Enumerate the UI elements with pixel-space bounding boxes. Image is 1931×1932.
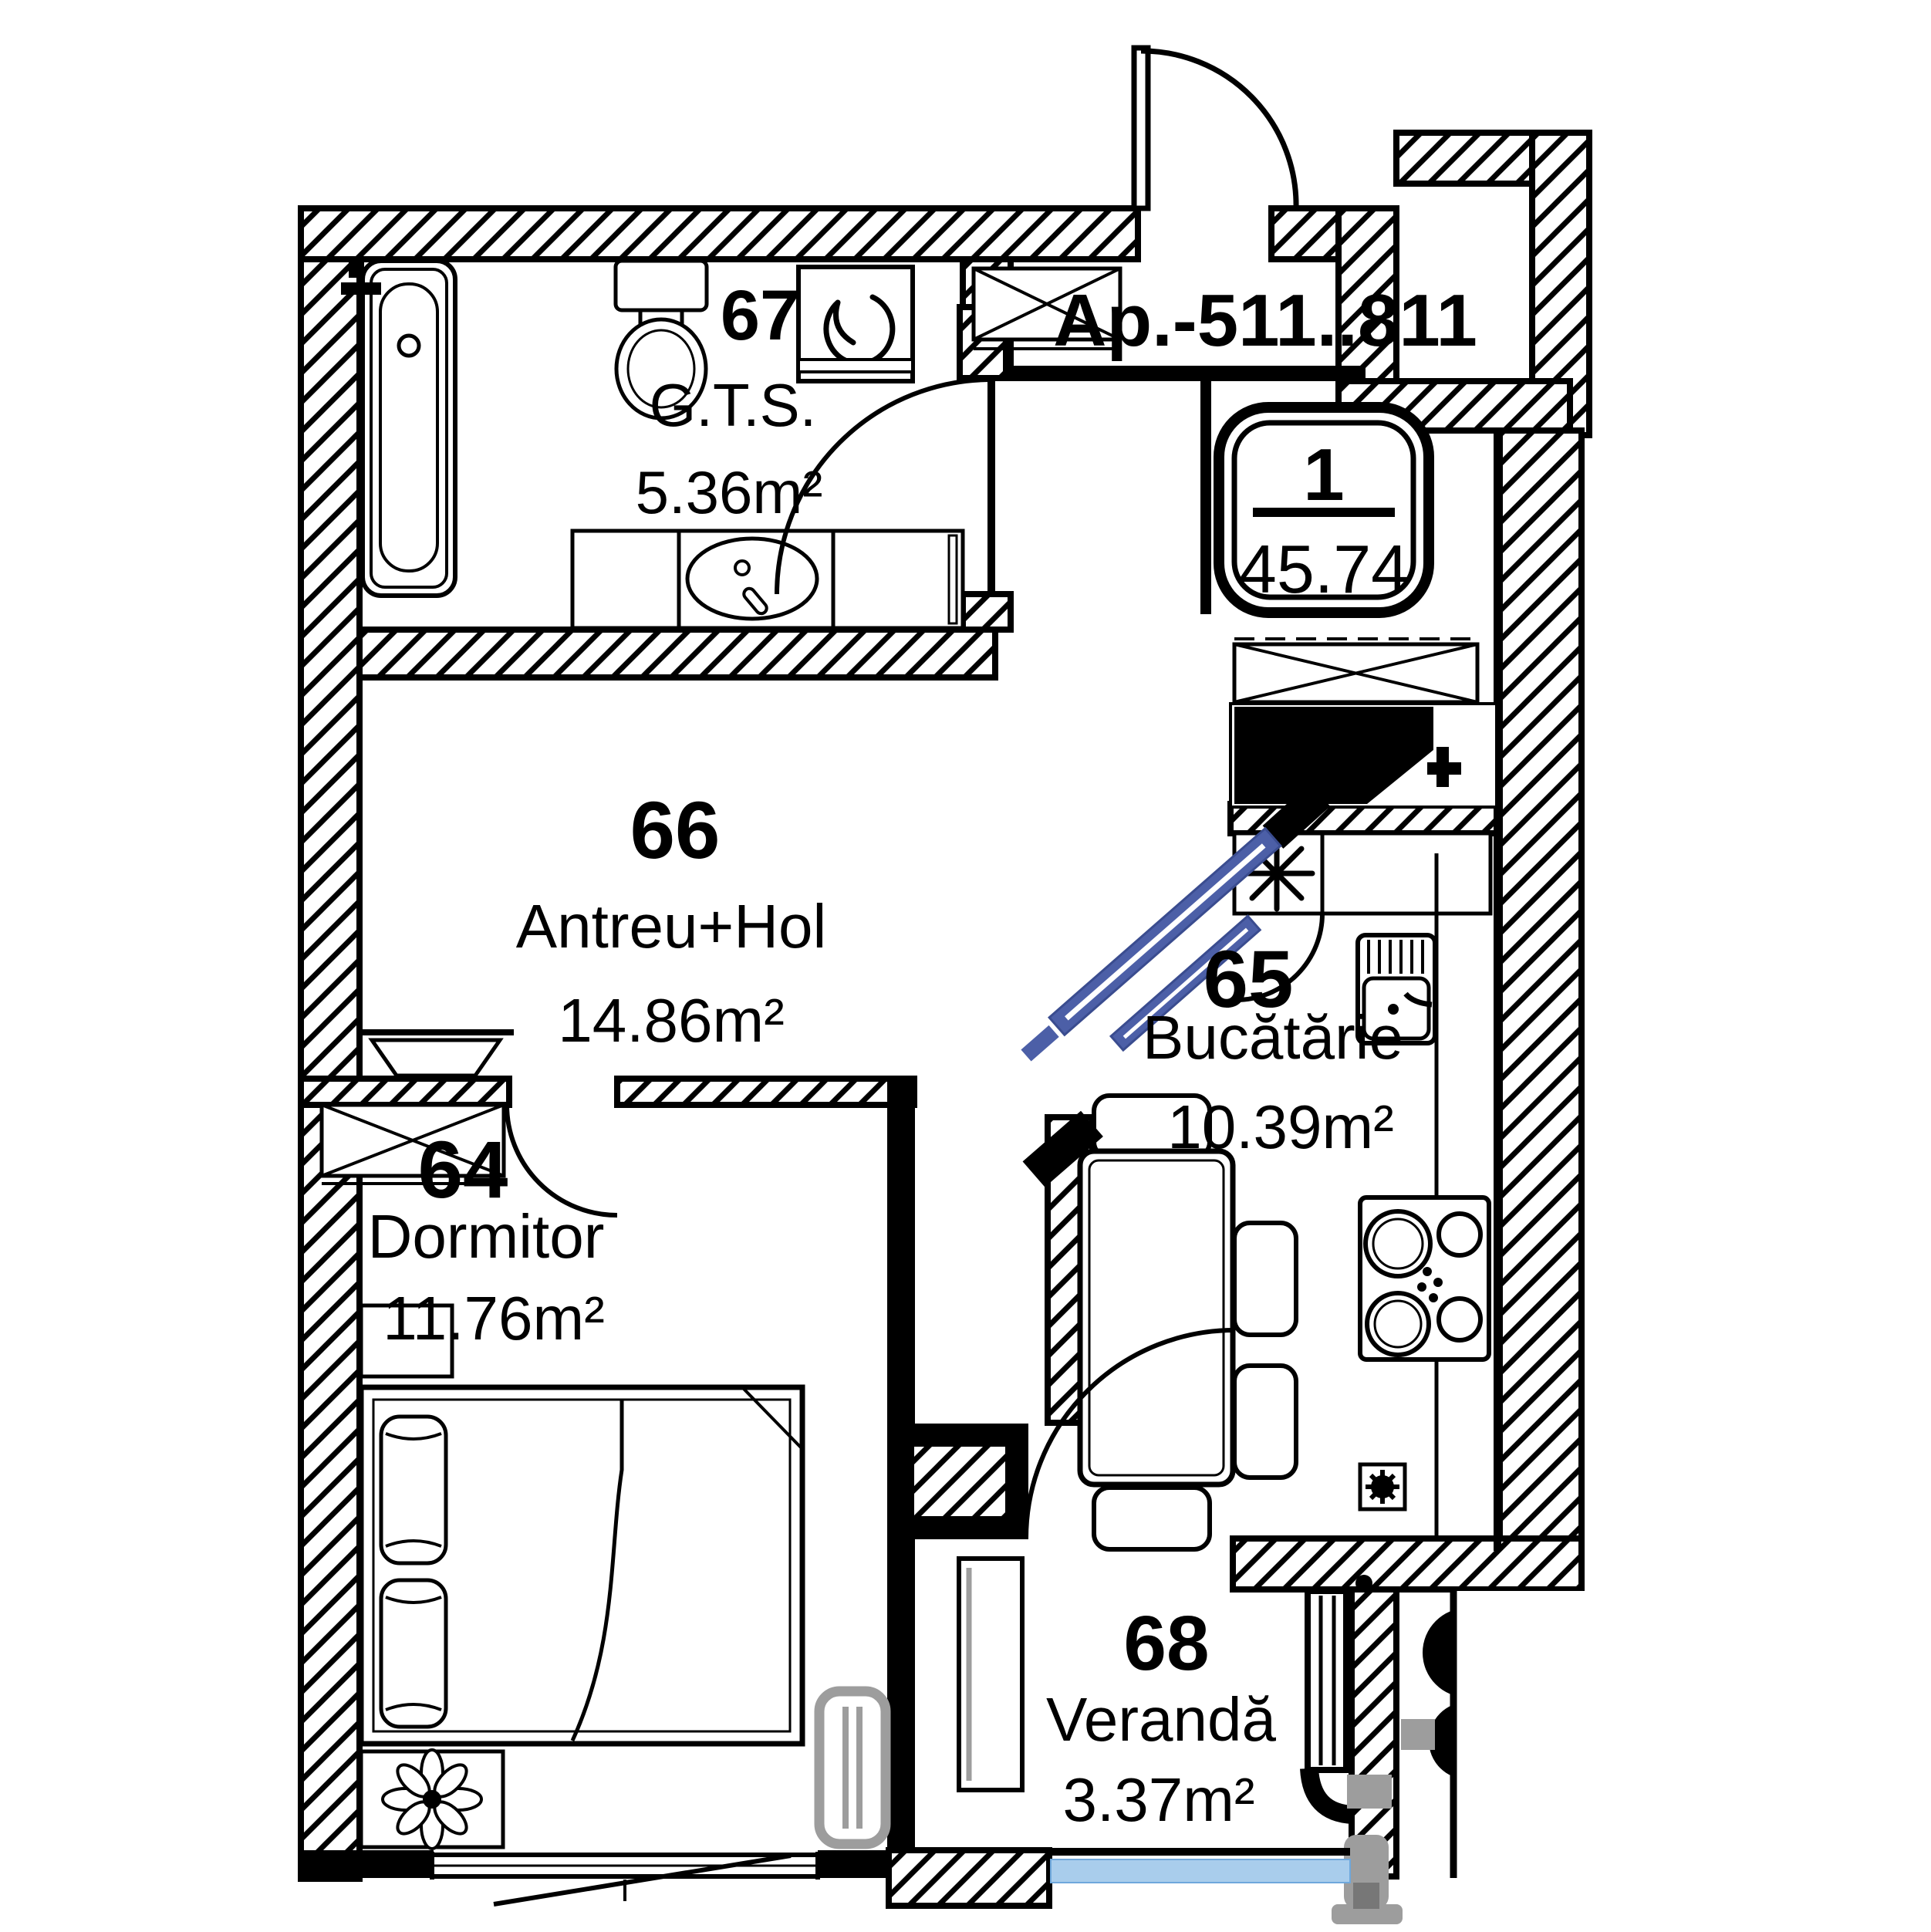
tub-drain [399, 336, 419, 356]
room-67-name: G.T.S. [650, 371, 817, 439]
bedroom-window [432, 1852, 818, 1904]
bed [361, 1387, 802, 1744]
tub-faucet2 [349, 262, 364, 278]
bathroom [341, 261, 991, 628]
apartment-label: Ap.-511..811 [1053, 279, 1477, 362]
wall-top-bathroom [301, 208, 1138, 259]
wall-veranda-right [1352, 1589, 1396, 1876]
wall-left [301, 208, 360, 1879]
bedroom [322, 1032, 886, 1904]
badge-area: 45.74 [1239, 531, 1409, 607]
entry-door-arc [1141, 51, 1296, 208]
chair [1094, 1488, 1210, 1549]
window-opening-line [494, 1856, 791, 1904]
sliding-door-handle [1021, 1025, 1058, 1062]
tub-faucet [341, 282, 381, 295]
chair [1234, 1366, 1296, 1478]
floor-plan-canvas: 1 45.74 [0, 0, 1931, 1932]
room-68-number: 68 [1123, 1600, 1209, 1687]
shaft-pipes [1401, 1589, 1592, 1884]
unit-badge: 1 45.74 [1219, 407, 1429, 613]
veranda-glazing [1049, 1852, 1350, 1883]
kitchen-closet [1234, 639, 1477, 702]
floor-plan-svg: 1 45.74 [0, 0, 1931, 1932]
room-66-name: Antreu+Hol [516, 892, 826, 961]
ceiling-dot [1355, 1575, 1372, 1592]
room-68-name: Verandă [1046, 1685, 1277, 1754]
wall-thin-badge-left [1200, 381, 1211, 614]
dining-table-set [1080, 1096, 1296, 1549]
room-67-area: 5.36m² [636, 458, 823, 526]
bath-faucet [735, 561, 749, 575]
room-64-name: Dormitor [368, 1202, 605, 1271]
room-64-area: 11.76m² [383, 1284, 605, 1353]
room-66-area: 14.86m² [558, 986, 784, 1055]
chair [1234, 1223, 1296, 1335]
floor-drain [1360, 1464, 1405, 1509]
pipe-bracket [1401, 1719, 1435, 1750]
wall-bottom-stub-hatch [889, 1850, 1049, 1906]
wall-bathroom-right-stub [963, 594, 1011, 630]
wall-bedroom-top-right [617, 1079, 914, 1105]
wall-bedroom-top-left [301, 1079, 509, 1105]
room-65-area: 10.39m² [1167, 1093, 1393, 1161]
bathtub [363, 261, 455, 596]
wall-bottom-stub [818, 1850, 889, 1878]
hall-console [356, 1032, 514, 1076]
nightstand-bottom [361, 1750, 503, 1849]
wall-kitchen-bottom [1233, 1539, 1582, 1589]
badge-rooms: 1 [1303, 434, 1344, 516]
radiator [819, 1691, 886, 1844]
wall-bottom-left [301, 1850, 434, 1878]
room-68-area: 3.37m² [1063, 1765, 1255, 1834]
room-65-name: Bucătărie [1143, 1003, 1403, 1072]
room-67-number: 67 [721, 276, 799, 355]
wall-bathroom-bottom [360, 630, 995, 677]
kitchen-faucet-h [1427, 762, 1461, 775]
wall-right-main [1500, 431, 1582, 1551]
washing-machine [798, 267, 913, 381]
bedroom-door-arc [507, 1105, 617, 1215]
pipe-clamp [1347, 1775, 1392, 1809]
bath-sink-counter [572, 531, 963, 628]
stove [1360, 1197, 1489, 1359]
entry-door-leaf [1134, 48, 1148, 208]
wall-inner-right-line [1494, 431, 1501, 1551]
wall-thin-badge-top [1012, 366, 1366, 381]
room-66-number: 66 [630, 785, 721, 876]
column-dining-core [912, 1444, 1008, 1518]
